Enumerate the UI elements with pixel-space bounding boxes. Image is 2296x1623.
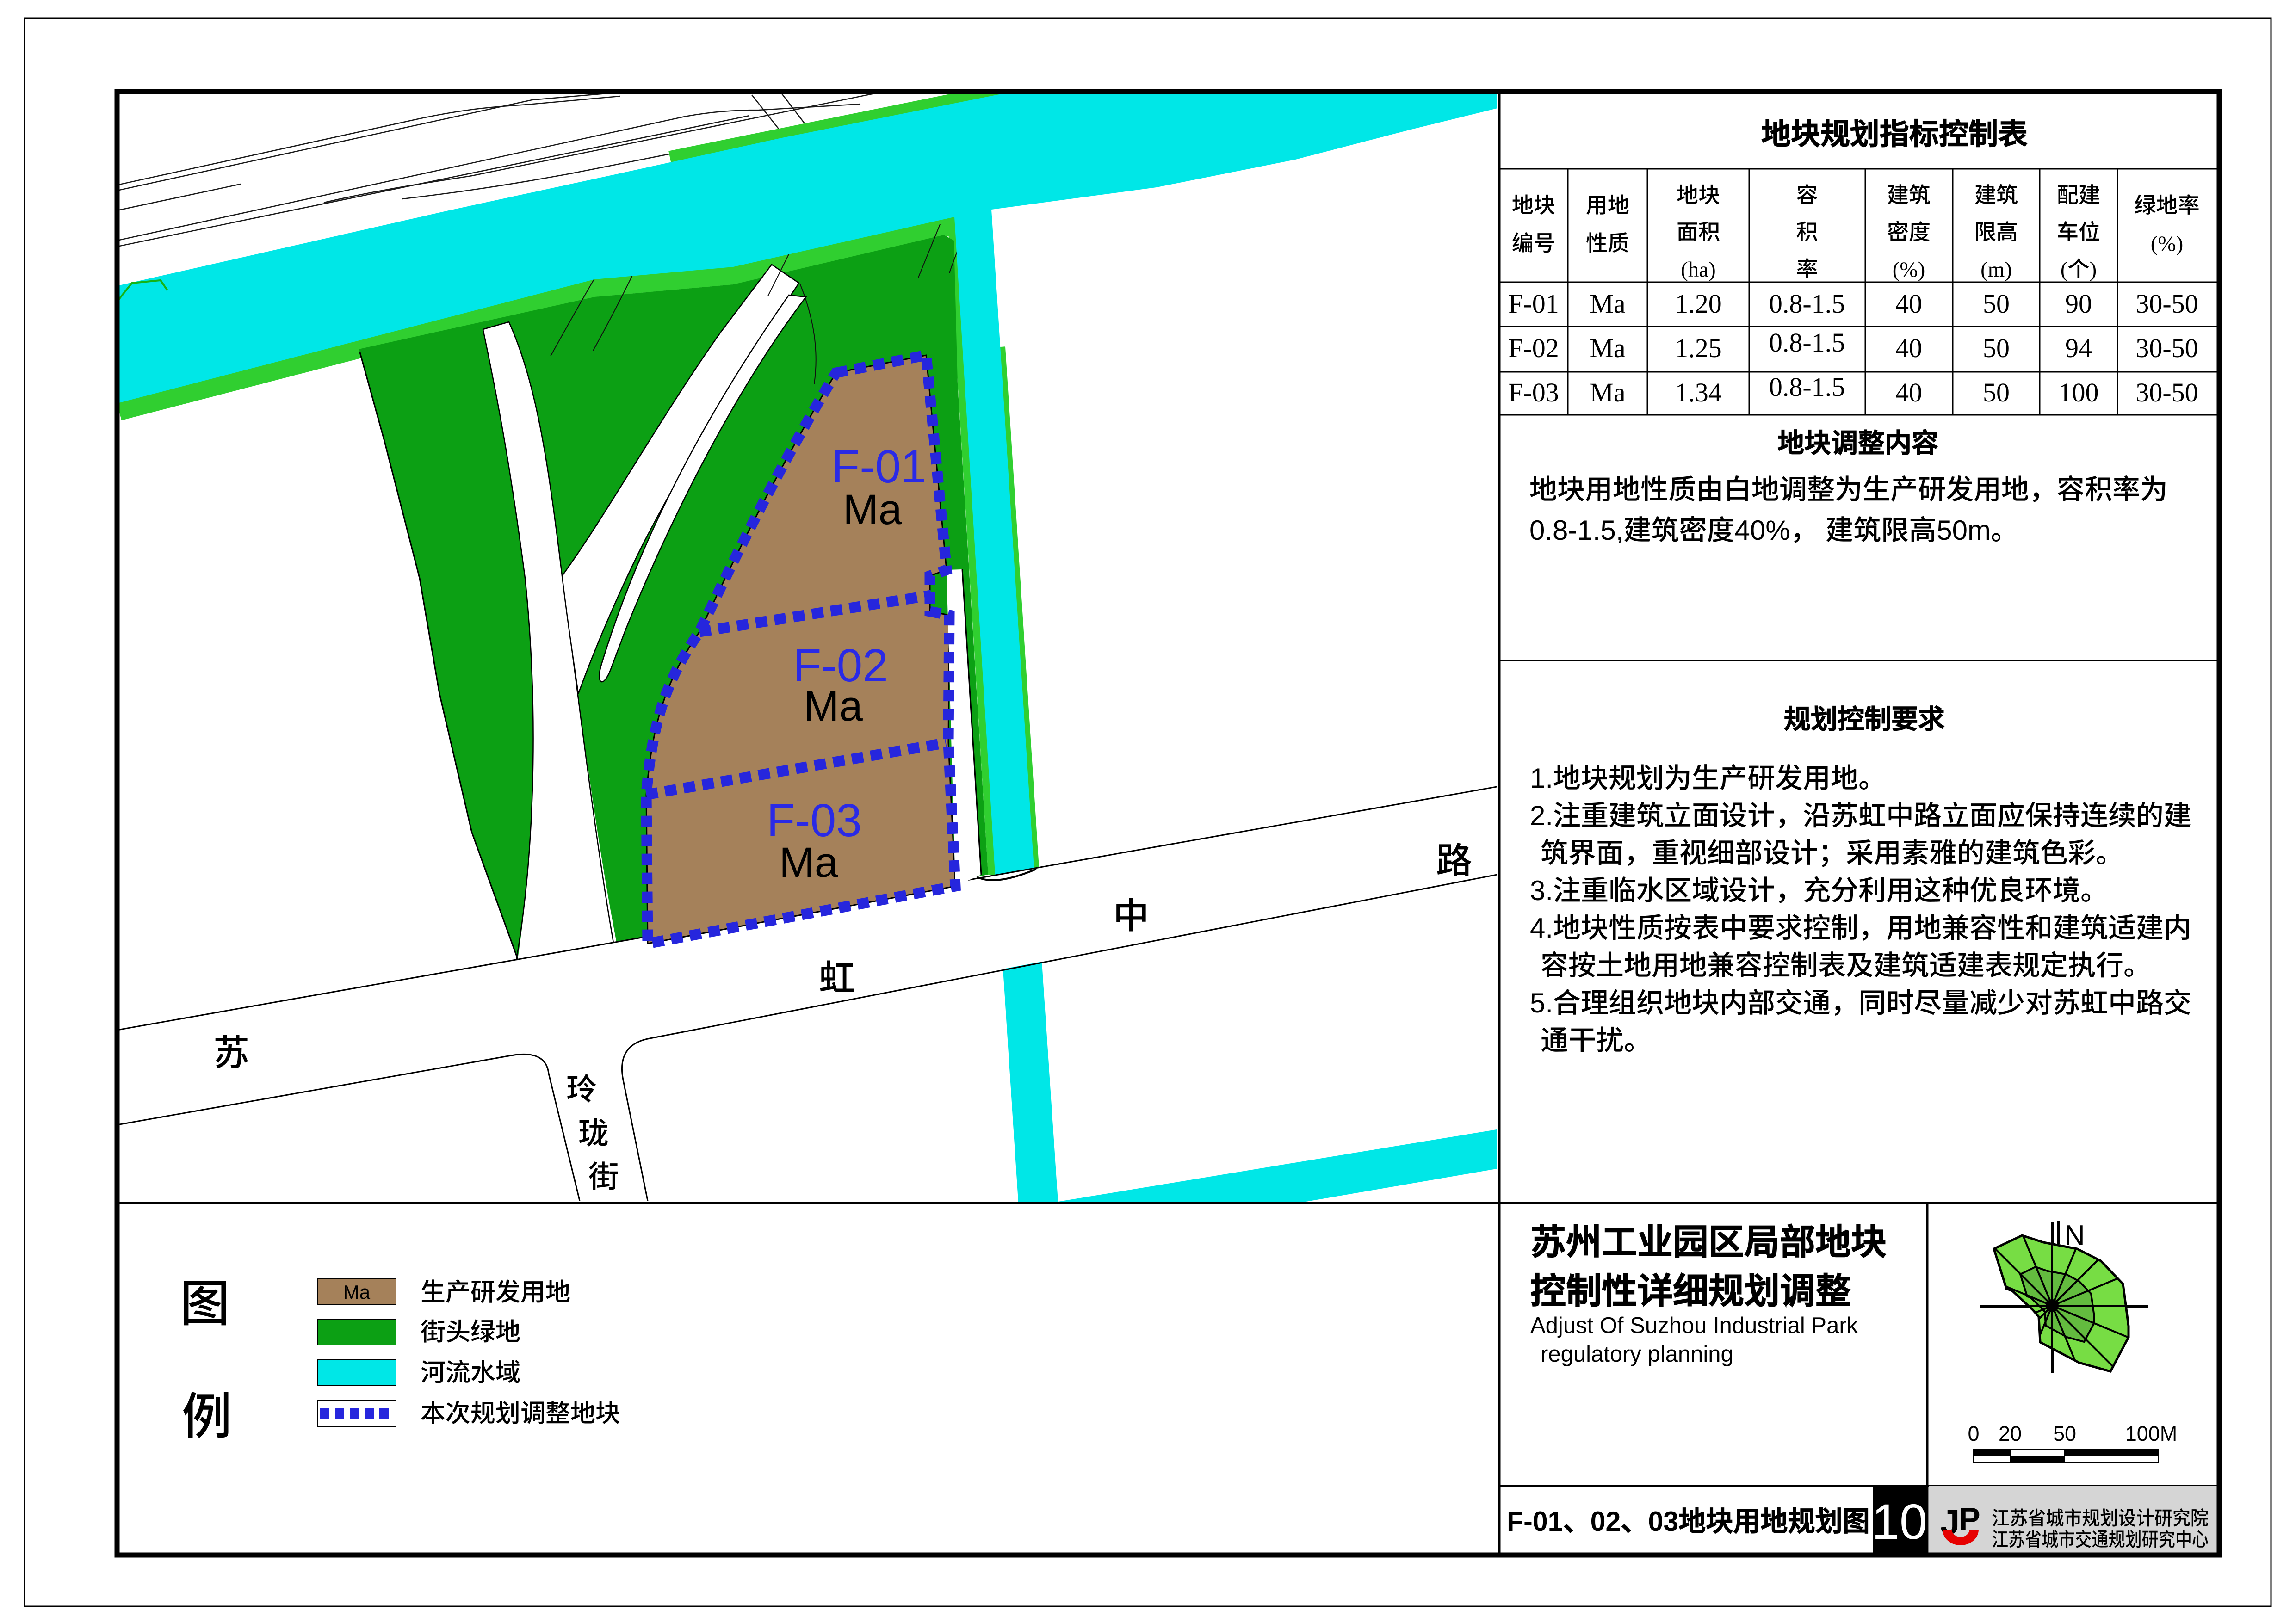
svg-text:地块: 地块 (1512, 187, 1555, 219)
svg-text:中: 中 (1113, 887, 1149, 939)
svg-text:90: 90 (2065, 289, 2092, 319)
svg-text:通干扰。: 通干扰。 (1541, 1018, 1652, 1058)
svg-text:车位: 车位 (2057, 214, 2100, 246)
svg-text:河流水域: 河流水域 (421, 1352, 520, 1388)
svg-text:0.8-1.5: 0.8-1.5 (1769, 327, 1845, 358)
svg-text:地块规划指标控制表: 地块规划指标控制表 (1761, 111, 2028, 153)
svg-text:4.地块性质按表中要求控制，用地兼容性和建筑适建内: 4.地块性质按表中要求控制，用地兼容性和建筑适建内 (1530, 906, 2191, 946)
svg-text:积: 积 (1796, 214, 1818, 246)
svg-text:(ha): (ha) (1681, 251, 1716, 283)
svg-text:F-02: F-02 (1508, 333, 1559, 363)
svg-text:30-50: 30-50 (2135, 333, 2198, 363)
svg-text:1.25: 1.25 (1675, 333, 1722, 363)
svg-text:Ma: Ma (804, 683, 863, 730)
svg-text:40: 40 (1895, 333, 1922, 363)
svg-text:50: 50 (1983, 333, 2010, 363)
svg-text:0.8-1.5: 0.8-1.5 (1769, 372, 1845, 402)
svg-text:用地: 用地 (1586, 187, 1629, 219)
svg-text:率: 率 (1796, 251, 1818, 283)
svg-text:40: 40 (1895, 377, 1922, 407)
svg-text:40: 40 (1895, 289, 1922, 319)
svg-text:20: 20 (1999, 1422, 2022, 1445)
svg-text:5.合理组织地块内部交通，同时尽量减少对苏虹中路交: 5.合理组织地块内部交通，同时尽量减少对苏虹中路交 (1530, 981, 2191, 1021)
svg-text:100: 100 (2059, 377, 2099, 407)
svg-text:编号: 编号 (1512, 225, 1555, 257)
svg-text:珑: 珑 (578, 1109, 609, 1153)
svg-text:Ma: Ma (1590, 377, 1625, 407)
svg-text:Ma: Ma (1590, 289, 1625, 319)
svg-text:筑界面，重视细部设计；采用素雅的建筑色彩。: 筑界面，重视细部设计；采用素雅的建筑色彩。 (1541, 831, 2123, 871)
svg-text:绿地率: 绿地率 (2135, 187, 2200, 219)
svg-text:10: 10 (1872, 1493, 1927, 1549)
svg-text:配建: 配建 (2057, 177, 2100, 209)
svg-text:规划控制要求: 规划控制要求 (1784, 697, 1945, 736)
svg-text:性质: 性质 (1586, 225, 1629, 257)
svg-text:F-01: F-01 (1508, 289, 1559, 319)
svg-text:(%): (%) (1893, 251, 1925, 283)
svg-text:(%): (%) (2151, 225, 2183, 257)
svg-text:地块用地性质由白地调整为生产研发用地，容积率为: 地块用地性质由白地调整为生产研发用地，容积率为 (1529, 467, 2168, 507)
svg-text:建筑: 建筑 (1887, 177, 1931, 209)
svg-text:F-01、02、03地块用地规划图: F-01、02、03地块用地规划图 (1507, 1499, 1870, 1539)
svg-text:2.注重建筑立面设计，沿苏虹中路立面应保持连续的建: 2.注重建筑立面设计，沿苏虹中路立面应保持连续的建 (1530, 793, 2191, 833)
svg-text:地块: 地块 (1677, 177, 1720, 209)
svg-text:限高: 限高 (1974, 214, 2018, 246)
svg-text:街头绿地: 街头绿地 (421, 1311, 520, 1348)
svg-text:例: 例 (182, 1376, 232, 1449)
svg-text:建筑: 建筑 (1974, 177, 2018, 209)
svg-text:50: 50 (1983, 289, 2010, 319)
svg-text:3.注重临水区域设计，充分利用这种优良环境。: 3.注重临水区域设计，充分利用这种优良环境。 (1530, 868, 2108, 908)
svg-text:容按土地用地兼容控制表及建筑适建表规定执行。: 容按土地用地兼容控制表及建筑适建表规定执行。 (1541, 943, 2151, 983)
svg-text:1.34: 1.34 (1675, 377, 1722, 407)
svg-text:图: 图 (180, 1264, 230, 1336)
svg-text:玲: 玲 (566, 1065, 597, 1109)
svg-text:F-01: F-01 (831, 441, 927, 493)
svg-text:苏: 苏 (213, 1024, 249, 1076)
svg-text:30-50: 30-50 (2135, 289, 2198, 319)
svg-text:本次规划调整地块: 本次规划调整地块 (421, 1393, 620, 1429)
svg-text:(m): (m) (1980, 251, 2012, 283)
svg-text:苏州工业园区局部地块: 苏州工业园区局部地块 (1530, 1214, 1887, 1265)
svg-text:0.8-1.5: 0.8-1.5 (1769, 289, 1845, 319)
svg-text:Ma: Ma (1590, 333, 1625, 363)
svg-text:(个): (个) (2061, 251, 2097, 283)
svg-text:密度: 密度 (1887, 214, 1931, 246)
svg-text:江苏省城市交通规划研究中心: 江苏省城市交通规划研究中心 (1992, 1524, 2209, 1552)
svg-text:30-50: 30-50 (2135, 377, 2198, 407)
svg-text:1.20: 1.20 (1675, 289, 1722, 319)
svg-text:0.8-1.5,建筑密度40%， 建筑限高50m。: 0.8-1.5,建筑密度40%， 建筑限高50m。 (1529, 508, 2018, 548)
svg-text:生产研发用地: 生产研发用地 (421, 1271, 570, 1308)
svg-text:100M: 100M (2125, 1422, 2178, 1445)
svg-text:地块调整内容: 地块调整内容 (1777, 421, 1938, 460)
svg-text:Ma: Ma (343, 1281, 371, 1303)
svg-text:Ma: Ma (843, 486, 903, 533)
svg-text:Ma: Ma (779, 839, 839, 886)
svg-text:街: 街 (588, 1152, 619, 1197)
svg-text:0: 0 (1968, 1422, 1979, 1445)
svg-text:50: 50 (2053, 1422, 2076, 1445)
svg-text:Adjust Of Suzhou Industrial Pa: Adjust Of Suzhou Industrial Park (1530, 1313, 1858, 1338)
svg-text:虹: 虹 (819, 950, 855, 1001)
svg-text:50: 50 (1983, 377, 2010, 407)
svg-text:控制性详细规划调整: 控制性详细规划调整 (1530, 1263, 1851, 1314)
svg-text:F-03: F-03 (1508, 377, 1559, 407)
svg-text:1.地块规划为生产研发用地。: 1.地块规划为生产研发用地。 (1530, 756, 1886, 796)
svg-text:路: 路 (1436, 832, 1472, 884)
svg-text:94: 94 (2065, 333, 2092, 363)
svg-text:regulatory planning: regulatory planning (1541, 1342, 1733, 1367)
svg-text:面积: 面积 (1677, 214, 1720, 246)
svg-text:容: 容 (1796, 177, 1818, 209)
